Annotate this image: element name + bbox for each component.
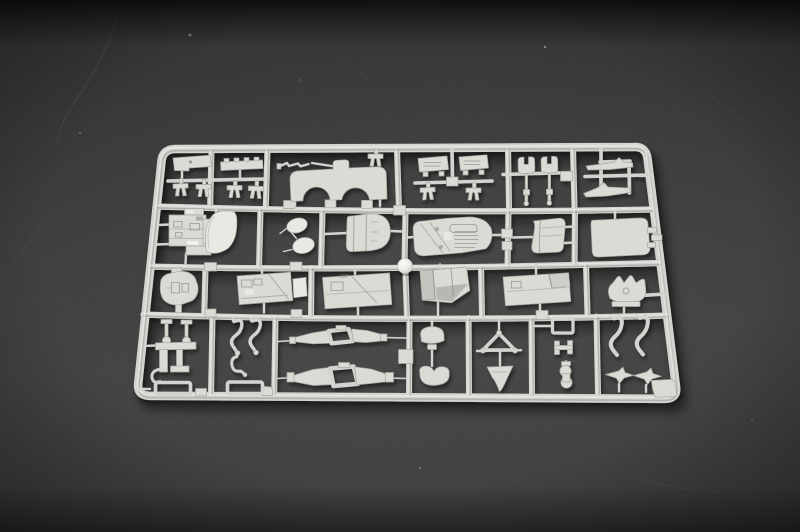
sprue-photo: [0, 0, 800, 532]
vignette: [0, 0, 800, 532]
photo-stage: [0, 0, 800, 532]
